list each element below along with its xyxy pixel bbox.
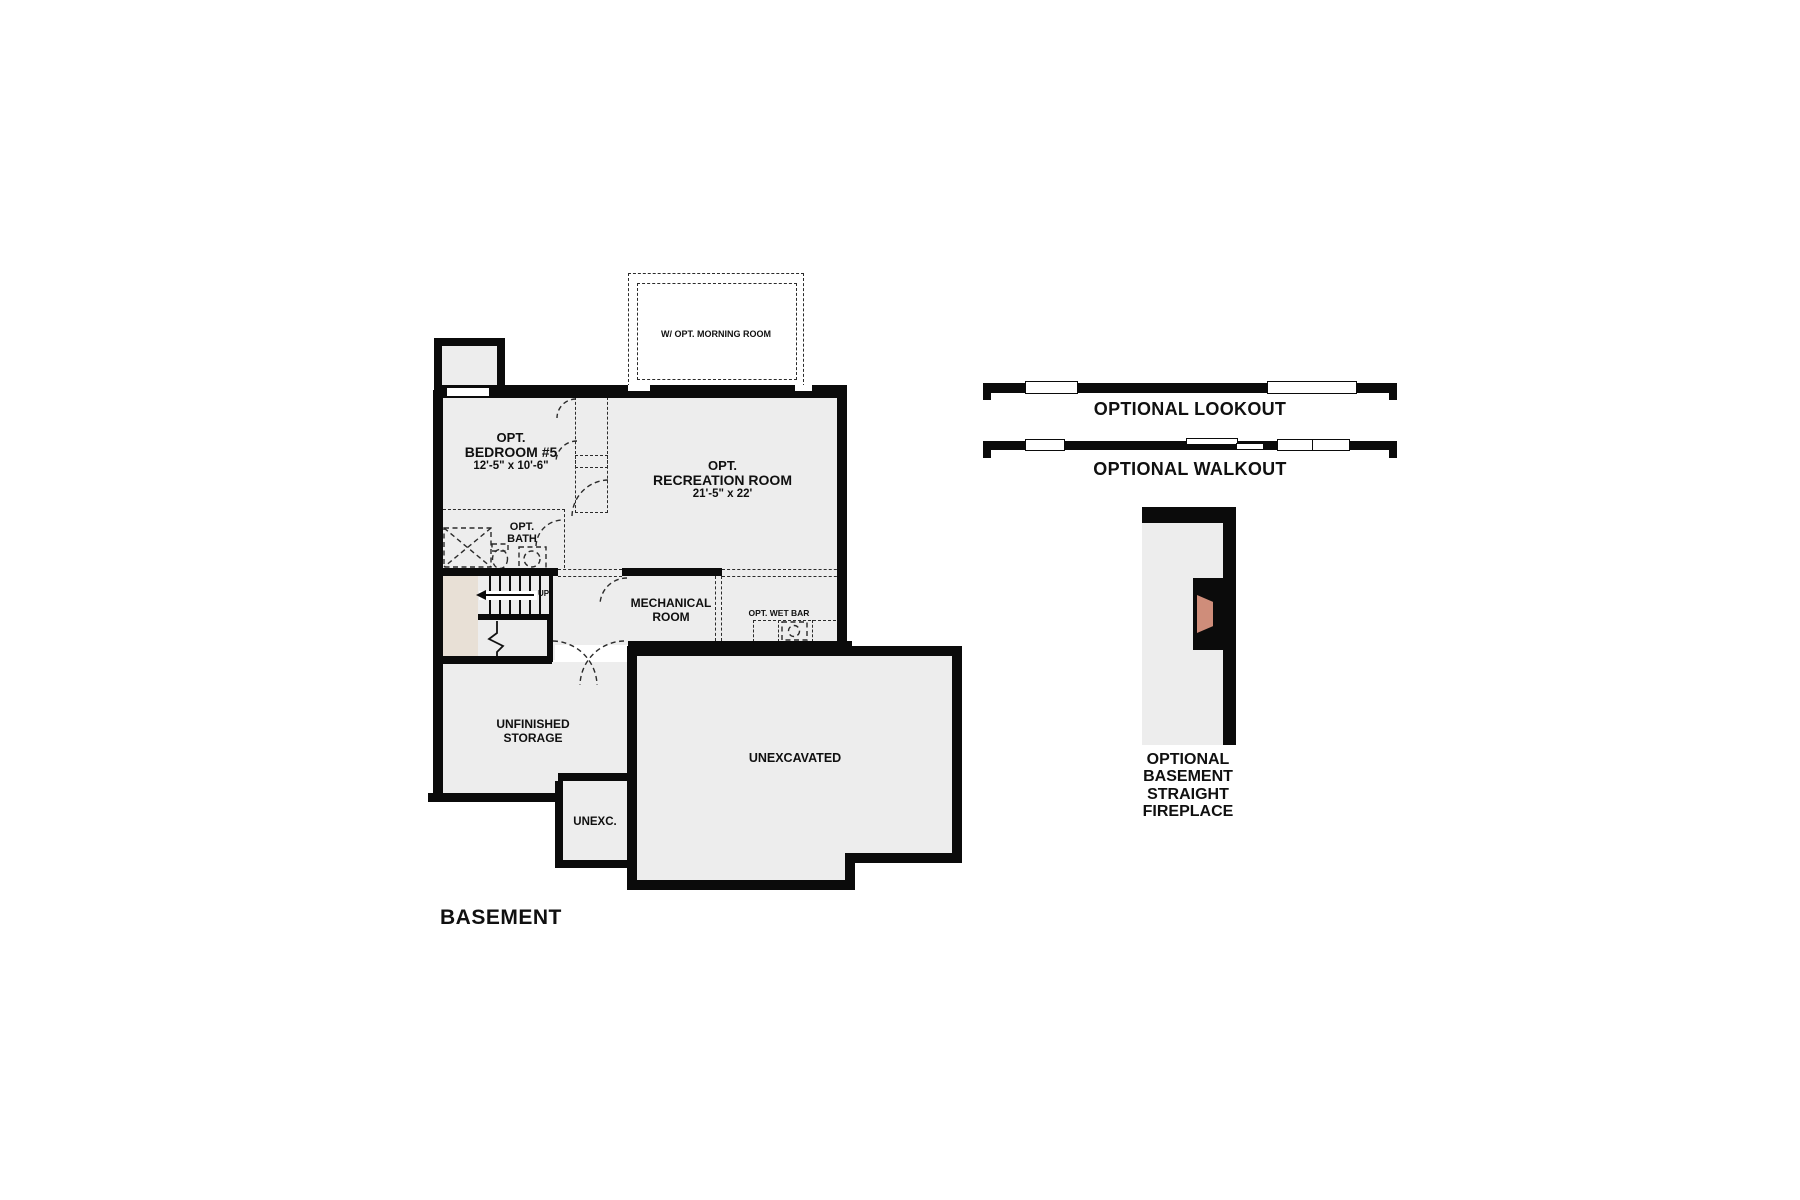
walkout-sliding-door-panel xyxy=(1236,443,1264,450)
closet-door-swing xyxy=(557,399,576,418)
bath-name: BATH xyxy=(483,533,561,545)
unexc-small-label: UNEXC. xyxy=(563,816,627,828)
bedroom-door-swing xyxy=(572,480,608,516)
lookout-endcap-left xyxy=(983,383,991,400)
wall-unexc-box-top xyxy=(558,773,630,781)
wall-unexc-box-bottom xyxy=(555,860,632,868)
toilet-tank xyxy=(492,544,508,551)
lookout-endcap-right xyxy=(1389,383,1397,400)
walkout-sliding-door-panel xyxy=(1186,438,1238,445)
wall-unexcavated-right xyxy=(952,646,962,863)
wall-unexcavated-top xyxy=(627,646,962,656)
wet-bar-label: OPT. WET BAR xyxy=(739,608,819,618)
walkout-window xyxy=(1312,439,1350,451)
storage-label: UNFINISHED STORAGE xyxy=(473,717,593,745)
bedroom-name: BEDROOM #5 xyxy=(436,445,586,460)
morning-room-opening-right xyxy=(795,385,812,391)
plan-title: BASEMENT xyxy=(440,906,562,930)
fireplace-wall-top xyxy=(1142,507,1233,523)
wall-unexcavated-left xyxy=(627,646,637,890)
wall-right-main xyxy=(837,390,847,655)
recreation-dims: 21'-5" x 22' xyxy=(620,488,825,501)
stair-landing-bar xyxy=(478,614,552,620)
bedroom-opt: OPT. xyxy=(436,431,586,445)
recreation-opt: OPT. xyxy=(620,459,825,473)
toilet-bowl xyxy=(493,550,508,569)
lookout-window xyxy=(1267,381,1357,394)
fireplace-line3: STRAIGHT xyxy=(1108,786,1268,803)
walkout-label: OPTIONAL WALKOUT xyxy=(988,459,1392,480)
wall-stair-edge xyxy=(551,575,553,615)
walkout-endcap-left xyxy=(983,441,991,458)
walkout-window xyxy=(1277,439,1313,451)
wall-stairs-bottom xyxy=(433,656,552,664)
morning-room-label: W/ OPT. MORNING ROOM xyxy=(628,329,804,339)
bath-sink xyxy=(524,551,540,567)
mechanical-line1: MECHANICAL xyxy=(621,597,721,611)
fireplace-line1: OPTIONAL xyxy=(1108,751,1268,768)
walkout-endcap-right xyxy=(1389,441,1397,458)
recreation-label: OPT. RECREATION ROOM 21'-5" x 22' xyxy=(620,459,825,501)
storage-door-swing-right xyxy=(580,641,624,685)
lookout-window xyxy=(1025,381,1078,394)
walkout-window xyxy=(1025,439,1065,451)
wet-bar-sink-box xyxy=(782,622,807,640)
wall-stair-side xyxy=(547,614,553,662)
wall-storage-bottom xyxy=(428,793,563,802)
wall-unexc-box-left xyxy=(555,781,563,868)
fireplace-line2: BASEMENT xyxy=(1108,768,1268,785)
storage-line2: STORAGE xyxy=(473,731,593,745)
bath-label: OPT. BATH xyxy=(483,521,561,545)
storage-line1: UNFINISHED xyxy=(473,717,593,731)
stair-break-line xyxy=(489,621,503,661)
wall-unexcavated-bottom-left xyxy=(627,880,855,890)
fireplace-label: OPTIONAL BASEMENT STRAIGHT FIREPLACE xyxy=(1108,751,1268,820)
wall-unexcavated-bottom-right xyxy=(855,853,962,863)
storage-door-swing-left xyxy=(553,641,597,685)
unexcavated-label: UNEXCAVATED xyxy=(735,751,855,765)
wall-mechanical-top xyxy=(622,568,722,576)
recreation-name: RECREATION ROOM xyxy=(620,473,825,488)
wall-bath-bottom xyxy=(433,568,558,576)
wet-bar-sink xyxy=(789,626,800,637)
fireplace-line4: FIREPLACE xyxy=(1108,803,1268,820)
morning-room-opening-left xyxy=(628,385,650,391)
up-label: UP xyxy=(538,589,549,598)
bath-opt: OPT. xyxy=(483,521,561,533)
bedroom-label: OPT. BEDROOM #5 12'-5" x 10'-6" xyxy=(436,431,586,473)
mechanical-line2: ROOM xyxy=(621,611,721,625)
mechanical-label: MECHANICAL ROOM xyxy=(621,597,721,624)
basement-window xyxy=(446,387,490,397)
basement-floor-plan-sheet: W/ OPT. MORNING ROOM OPT. BEDROOM #5 12'… xyxy=(0,0,1800,1200)
lookout-label: OPTIONAL LOOKOUT xyxy=(988,399,1392,420)
bedroom-dims: 12'-5" x 10'-6" xyxy=(436,460,586,473)
